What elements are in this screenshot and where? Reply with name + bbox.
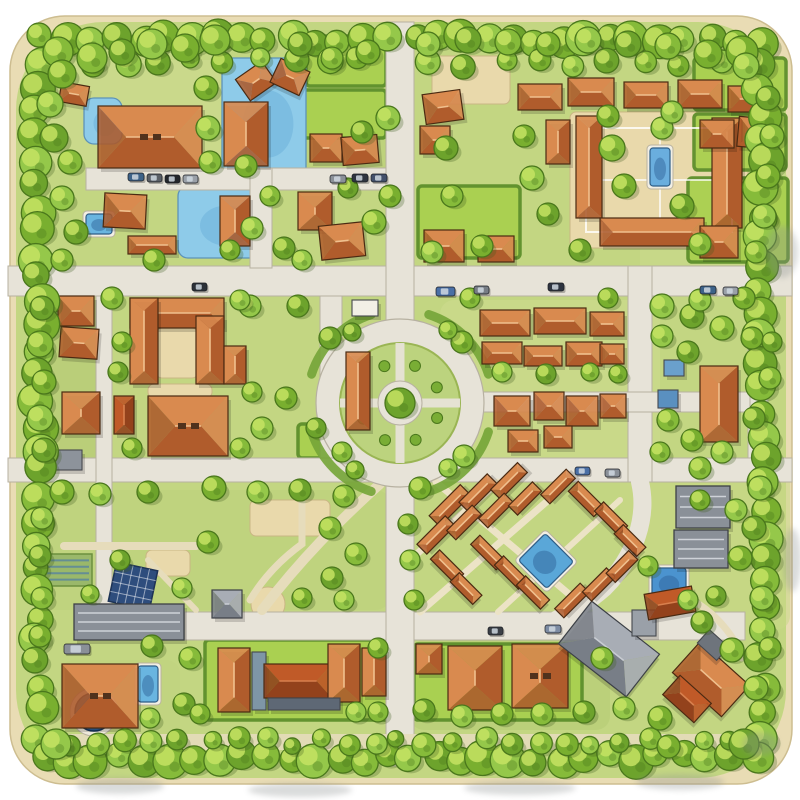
cast-shadow xyxy=(76,778,164,794)
car xyxy=(575,467,592,477)
building-v xyxy=(512,644,571,712)
building-h xyxy=(534,392,567,424)
building-h xyxy=(98,106,205,172)
shrub xyxy=(432,412,443,423)
building-h xyxy=(700,120,737,152)
building-h xyxy=(534,308,589,338)
roof-dormer xyxy=(153,134,161,140)
building-v xyxy=(566,396,601,430)
shrub xyxy=(409,360,420,371)
building-h xyxy=(590,312,627,340)
building-v xyxy=(196,316,227,388)
cast-shadow xyxy=(766,226,798,278)
car xyxy=(147,174,164,184)
roof-dormer xyxy=(90,693,98,699)
car xyxy=(352,174,370,184)
building-h xyxy=(600,344,627,368)
sand-patch xyxy=(156,328,198,378)
building-g xyxy=(212,590,245,622)
car xyxy=(723,287,740,297)
building-v xyxy=(700,366,741,446)
roof-dormer xyxy=(103,693,111,699)
building-f xyxy=(268,698,343,714)
car xyxy=(474,286,491,296)
car xyxy=(330,175,348,185)
building-h xyxy=(508,430,541,456)
building-h xyxy=(58,296,97,330)
building-v xyxy=(218,648,253,716)
building-h xyxy=(544,426,575,452)
building-v xyxy=(576,116,605,222)
building-h xyxy=(422,89,467,128)
roof-dormer xyxy=(530,673,538,679)
building-v xyxy=(130,298,161,388)
car xyxy=(488,627,505,637)
car xyxy=(605,469,622,479)
roof-dormer xyxy=(543,673,551,679)
building-v xyxy=(328,644,363,706)
car xyxy=(545,625,563,635)
shrub xyxy=(410,434,421,445)
building-v xyxy=(224,346,249,388)
shrub xyxy=(380,435,391,446)
building-G xyxy=(74,604,187,644)
building-v xyxy=(62,392,103,438)
building-h xyxy=(103,193,150,233)
building-h xyxy=(518,84,565,114)
car xyxy=(700,286,718,296)
building-f xyxy=(664,360,687,380)
building-v xyxy=(546,120,573,168)
cast-shadow xyxy=(248,783,352,797)
town-map xyxy=(0,0,800,800)
building-h xyxy=(416,644,445,678)
building-h xyxy=(59,327,102,364)
building-f xyxy=(352,300,381,320)
roof-dormer xyxy=(191,423,199,429)
shrub xyxy=(431,382,442,393)
sand-patch xyxy=(250,500,330,536)
roof-dormer xyxy=(178,423,186,429)
car xyxy=(128,173,146,183)
cast-shadow xyxy=(636,774,724,790)
building-h xyxy=(318,221,369,264)
building-v xyxy=(494,396,533,430)
car xyxy=(371,174,389,184)
car xyxy=(64,644,92,656)
pool xyxy=(647,145,673,189)
building-h xyxy=(678,80,725,112)
cast-shadow xyxy=(742,732,778,756)
car xyxy=(548,283,566,293)
building-h xyxy=(480,310,533,340)
roof-dormer xyxy=(140,134,148,140)
car xyxy=(165,175,182,185)
building-G xyxy=(674,530,731,572)
road xyxy=(628,266,652,482)
building-v xyxy=(310,134,345,166)
car xyxy=(192,283,209,293)
shrub xyxy=(379,361,390,372)
building-h xyxy=(600,394,629,422)
building-v xyxy=(346,352,373,434)
map-canvas xyxy=(0,0,800,800)
building-d xyxy=(264,664,335,702)
building-d xyxy=(114,396,137,438)
building-h xyxy=(148,396,231,460)
car xyxy=(183,175,200,185)
building-h xyxy=(62,664,141,732)
cast-shadow xyxy=(464,781,576,795)
car xyxy=(436,287,457,298)
